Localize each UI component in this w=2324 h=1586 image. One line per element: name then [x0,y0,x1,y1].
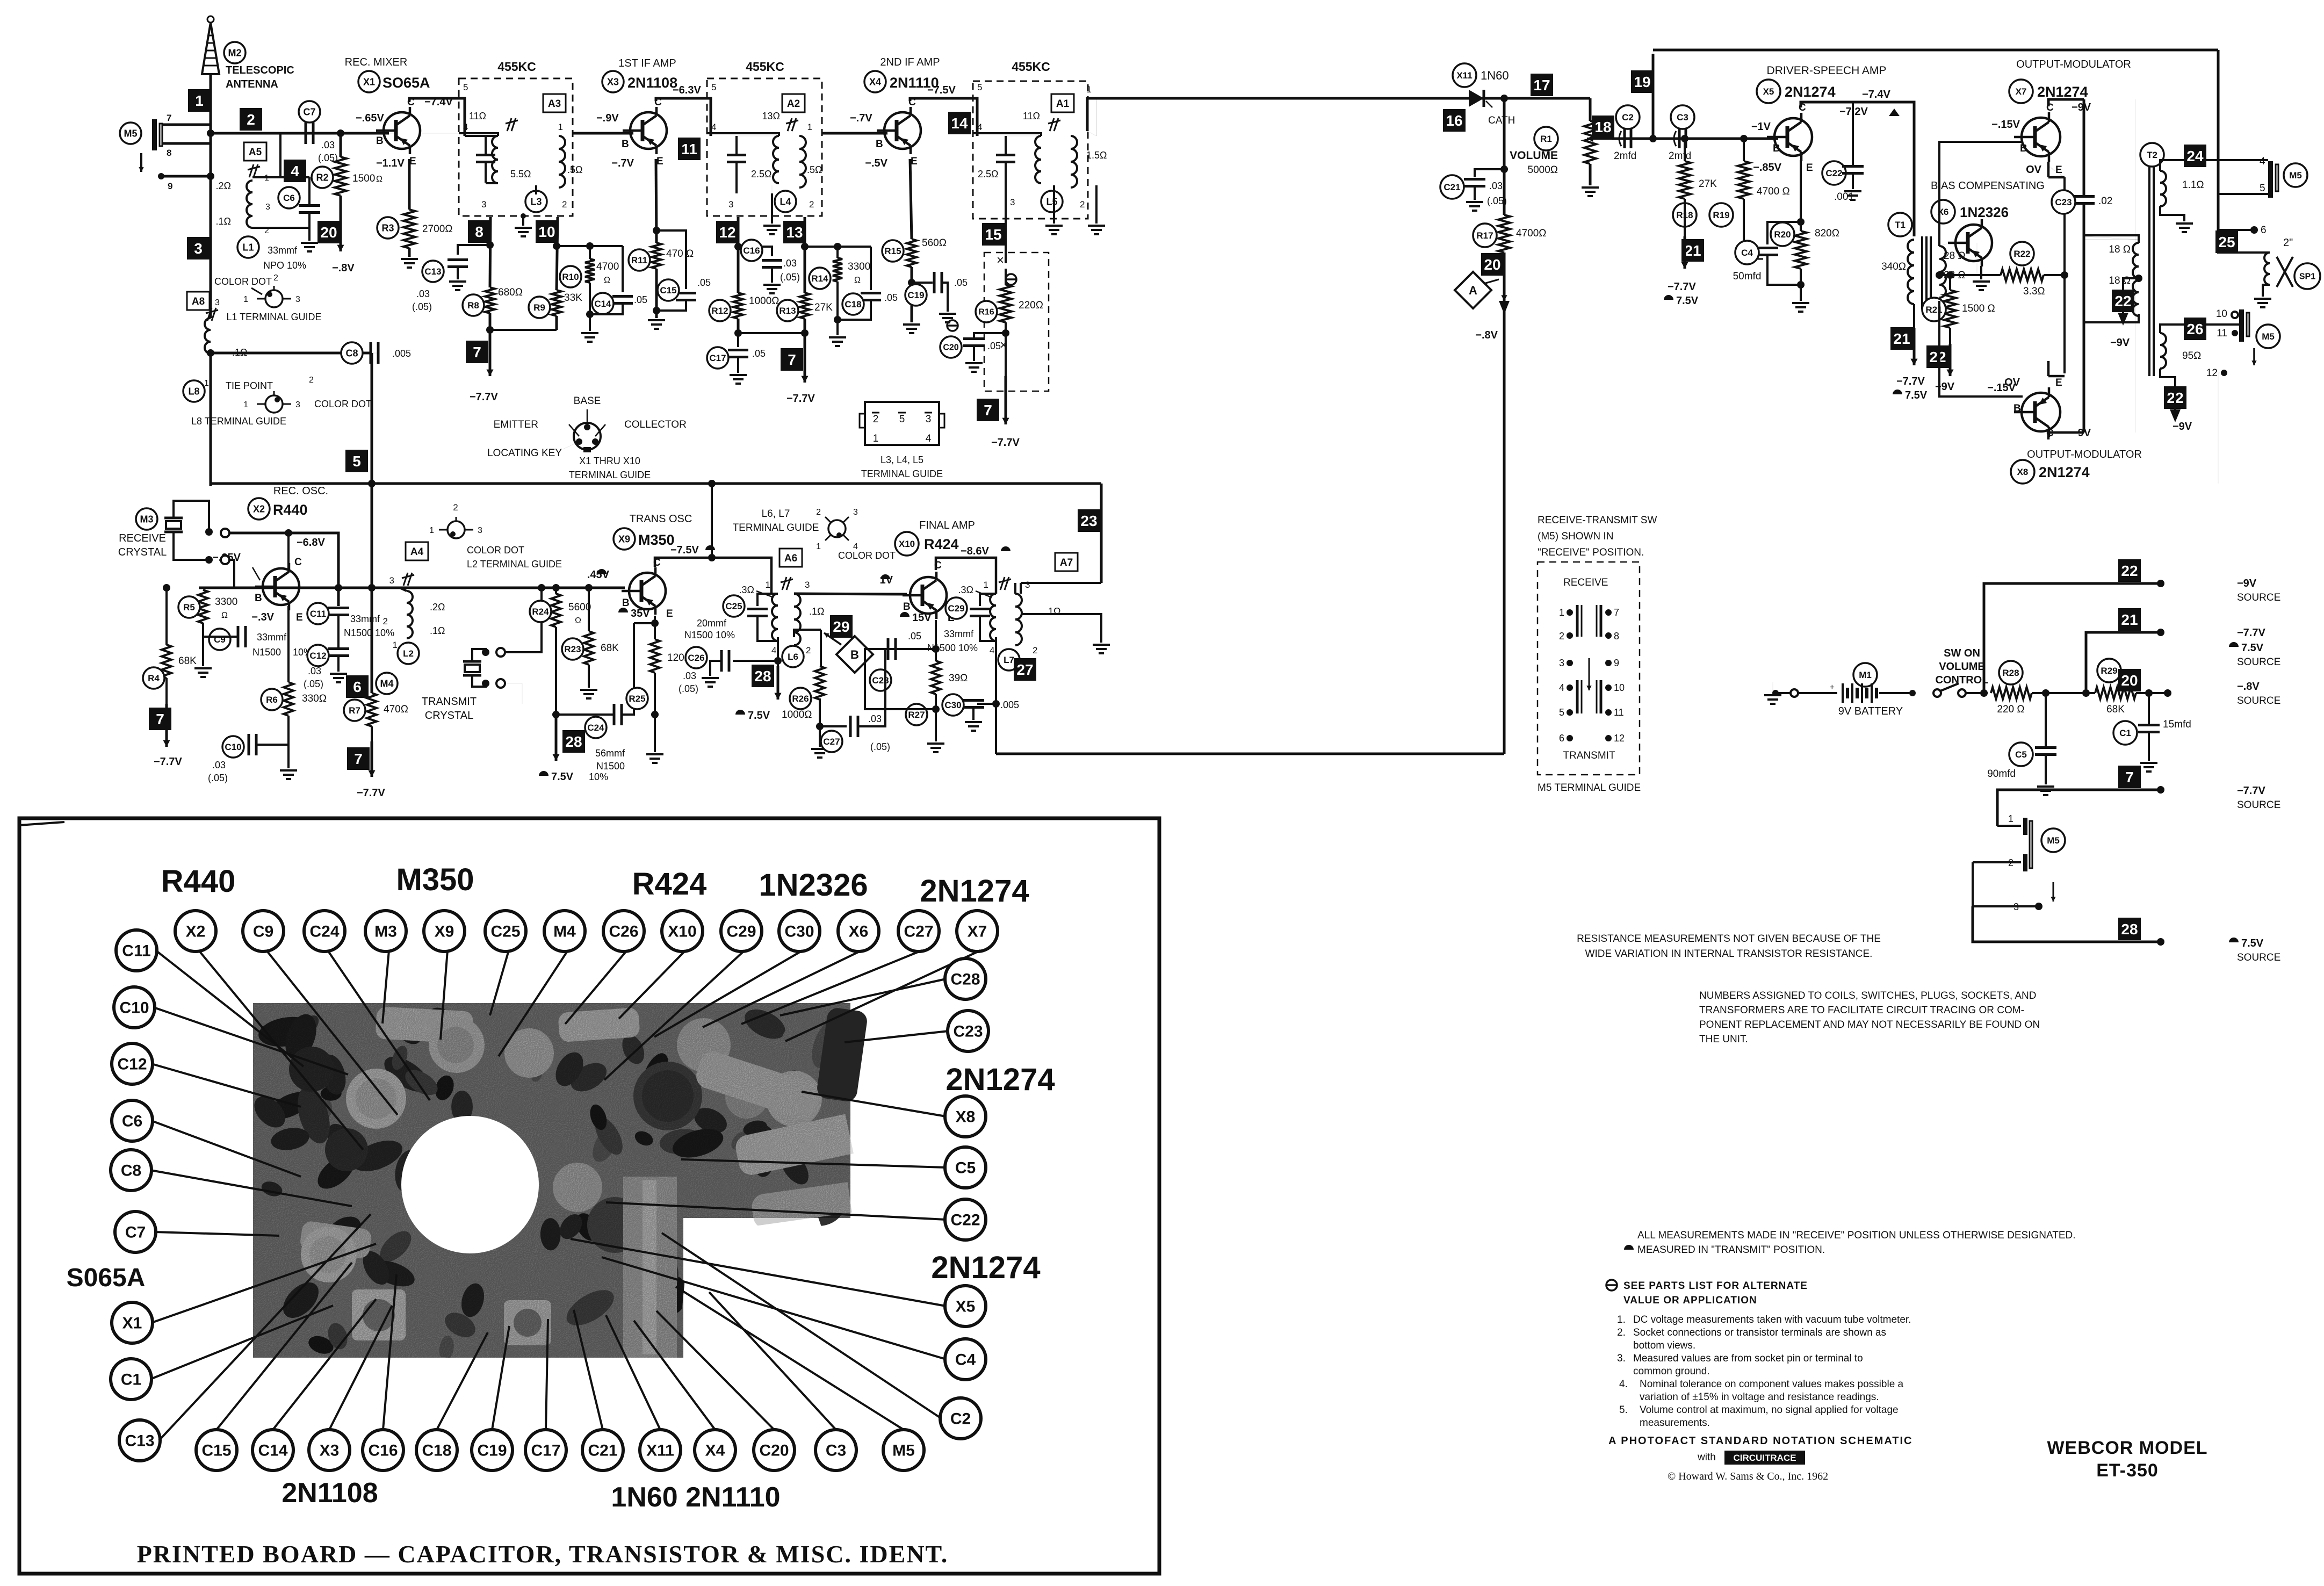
svg-text:11Ω: 11Ω [469,111,486,121]
svg-text:C2: C2 [950,1410,971,1428]
svg-text:measurements.: measurements. [1640,1417,1710,1429]
svg-text:R22: R22 [2013,249,2030,259]
svg-text:−9V: −9V [2237,578,2257,589]
svg-text:L2 TERMINAL GUIDE: L2 TERMINAL GUIDE [467,559,562,569]
svg-text:.05: .05 [697,277,711,288]
svg-text:Ω: Ω [575,616,581,625]
svg-text:COLLECTOR: COLLECTOR [624,419,687,430]
svg-text:15V: 15V [912,612,932,624]
svg-text:ALL MEASUREMENTS MADE IN "RECE: ALL MEASUREMENTS MADE IN "RECEIVE" POSIT… [1637,1230,2076,1241]
svg-text:28: 28 [2121,921,2138,938]
svg-text:X11: X11 [646,1442,674,1460]
svg-text:−.65V: −.65V [356,112,384,124]
svg-text:27K: 27K [814,302,833,313]
svg-text:2700Ω: 2700Ω [422,224,452,235]
svg-text:33mmf: 33mmf [350,614,380,624]
svg-text:C16: C16 [743,246,760,256]
svg-text:.2Ω: .2Ω [216,181,231,191]
svg-text:13: 13 [786,224,803,241]
svg-text:N1500 10%: N1500 10% [927,643,978,653]
svg-text:"RECEIVE" POSITION.: "RECEIVE" POSITION. [1538,547,1644,558]
svg-text:C19: C19 [477,1442,507,1460]
svg-text:C14: C14 [258,1442,287,1460]
svg-text:R6: R6 [266,695,278,705]
svg-text:B: B [850,648,859,661]
svg-text:L1 TERMINAL GUIDE: L1 TERMINAL GUIDE [226,312,321,322]
svg-text:C16: C16 [368,1442,398,1460]
svg-text:−7.7V: −7.7V [470,391,498,403]
svg-text:16: 16 [1446,112,1462,129]
svg-text:−7.7V: −7.7V [2237,627,2265,639]
svg-text:−.8V: −.8V [2237,681,2260,693]
svg-text:.05: .05 [908,631,921,641]
svg-text:C19: C19 [907,290,924,300]
svg-text:2N1108: 2N1108 [282,1477,378,1509]
svg-text:.5Ω: .5Ω [567,164,582,175]
svg-text:(.05): (.05) [870,741,890,752]
svg-text:C18: C18 [422,1442,451,1460]
svg-text:14: 14 [951,115,968,132]
svg-text:21: 21 [1893,330,1910,347]
svg-text:X1: X1 [363,76,375,87]
svg-text:7: 7 [1614,607,1619,618]
svg-text:R440: R440 [161,864,236,899]
svg-text:−7.5V: −7.5V [927,84,956,96]
svg-text:−.8V: −.8V [1475,329,1498,341]
svg-text:X9: X9 [435,923,454,941]
svg-text:−7.5V: −7.5V [670,544,699,556]
svg-text:3: 3 [478,526,482,535]
svg-text:−9V: −9V [2072,102,2091,113]
svg-text:L3, L4, L5: L3, L4, L5 [880,455,923,465]
svg-text:R25: R25 [629,694,645,704]
svg-text:CIRCUITRACE: CIRCUITRACE [1733,1453,1796,1463]
svg-text:Ω: Ω [376,175,382,184]
svg-text:TRANSFORMERS ARE TO FACILITATE: TRANSFORMERS ARE TO FACILITATE CIRCUIT T… [1699,1005,2024,1016]
svg-text:−.9V: −.9V [596,112,619,124]
svg-text:OUTPUT-MODULATOR: OUTPUT-MODULATOR [2027,449,2142,460]
svg-text:E: E [296,612,303,623]
svg-text:5.: 5. [1619,1404,1628,1416]
svg-text:E: E [911,156,918,167]
svg-text:Volume control at maximum, no: Volume control at maximum, no signal app… [1640,1404,1899,1416]
svg-text:R12: R12 [711,306,728,316]
svg-text:7.5V: 7.5V [748,710,770,722]
svg-text:RECEIVE: RECEIVE [119,532,166,544]
svg-text:.03: .03 [308,666,321,676]
svg-text:OV: OV [2026,164,2042,176]
svg-text:×: × [997,253,1004,268]
svg-text:C12: C12 [117,1056,147,1073]
svg-text:TIE POINT: TIE POINT [226,380,273,391]
svg-text:C26: C26 [688,653,704,663]
svg-text:SOURCE: SOURCE [2237,799,2280,811]
svg-text:L6, L7: L6, L7 [762,508,790,520]
svg-text:2: 2 [816,508,821,517]
svg-text:4: 4 [463,122,468,132]
svg-text:C: C [294,557,302,568]
svg-text:−6.8V: −6.8V [297,537,325,549]
svg-text:A PHOTOFACT STANDARD NOTATION: A PHOTOFACT STANDARD NOTATION SCHEMATIC [1608,1435,1913,1447]
svg-text:.05: .05 [752,348,766,359]
svg-text:C21: C21 [588,1442,617,1460]
svg-text:470Ω: 470Ω [384,704,408,715]
svg-text:A8: A8 [192,296,205,307]
svg-text:C8: C8 [345,348,358,358]
svg-text:X4: X4 [869,76,881,87]
svg-text:3: 3 [728,199,733,210]
svg-text:M5: M5 [892,1442,915,1460]
svg-text:.45V: .45V [587,569,610,581]
svg-text:5: 5 [977,82,982,92]
svg-text:1: 1 [429,526,434,535]
svg-text:A2: A2 [787,98,800,110]
svg-text:(.05): (.05) [679,683,698,694]
svg-text:B: B [876,139,883,150]
svg-text:11Ω: 11Ω [1023,111,1040,121]
svg-text:5: 5 [463,82,468,92]
svg-text:T2: T2 [2147,150,2157,160]
svg-text:68K: 68K [601,643,619,654]
svg-text:1: 1 [1559,607,1564,618]
svg-text:TRANSMIT: TRANSMIT [1563,750,1615,761]
svg-text:−.5V: −.5V [865,157,887,169]
svg-text:4700Ω: 4700Ω [1516,228,1546,239]
svg-text:33mmf: 33mmf [268,245,298,256]
svg-text:C13: C13 [424,266,441,277]
svg-text:R424: R424 [632,867,707,902]
svg-text:R23: R23 [564,644,581,654]
svg-text:19: 19 [1634,74,1650,90]
svg-text:3: 3 [215,298,220,307]
svg-text:2: 2 [273,273,278,283]
svg-text:M5: M5 [2289,170,2302,181]
svg-text:1: 1 [873,433,879,444]
svg-text:X2: X2 [253,503,265,514]
svg-text:LOCATING KEY: LOCATING KEY [487,448,562,459]
svg-text:20: 20 [320,224,337,241]
svg-text:1N60: 1N60 [1481,69,1509,82]
svg-text:ANTENNA: ANTENNA [226,78,278,90]
svg-text:2.5Ω: 2.5Ω [978,169,998,179]
svg-text:C3: C3 [1677,112,1688,122]
svg-text:C23: C23 [953,1023,983,1041]
svg-text:5.5Ω: 5.5Ω [510,169,531,179]
svg-text:L8: L8 [188,386,199,396]
svg-text:.3Ω: .3Ω [739,585,754,595]
svg-text:C15: C15 [660,285,676,295]
svg-text:.05: .05 [954,277,968,288]
svg-text:−.7V: −.7V [850,112,872,124]
svg-text:M5 TERMINAL GUIDE: M5 TERMINAL GUIDE [1538,782,1641,794]
svg-text:1: 1 [816,542,821,551]
svg-text:R27: R27 [908,710,925,720]
svg-text:3: 3 [805,580,810,590]
svg-text:A5: A5 [249,147,262,158]
svg-text:C22: C22 [950,1212,980,1229]
svg-text:5000Ω: 5000Ω [1528,164,1558,176]
svg-text:R8: R8 [467,300,479,311]
svg-text:18 Ω: 18 Ω [2109,244,2131,255]
svg-text:39Ω: 39Ω [949,673,968,684]
svg-text:X5: X5 [956,1298,976,1316]
svg-text:X1: X1 [122,1315,142,1332]
svg-text:1: 1 [2008,813,2013,824]
svg-text:M4: M4 [380,678,393,689]
svg-text:SW ON: SW ON [1944,647,1980,659]
svg-text:1: 1 [766,580,770,590]
svg-text:ET-350: ET-350 [2096,1460,2159,1481]
svg-text:C29: C29 [948,603,964,614]
svg-text:VOLUME: VOLUME [1939,661,1985,673]
svg-text:2.5Ω: 2.5Ω [751,169,771,179]
svg-text:90mfd: 90mfd [1987,768,2016,780]
svg-text:3300: 3300 [848,261,870,272]
svg-text:820Ω: 820Ω [1815,228,1839,239]
svg-text:455KC: 455KC [746,60,784,74]
svg-text:C26: C26 [609,923,638,941]
svg-text:680Ω: 680Ω [498,287,523,298]
svg-text:−.3V: −.3V [251,611,274,623]
svg-text:X8: X8 [2017,467,2029,477]
svg-text:6: 6 [2261,225,2267,236]
svg-text:with: with [1697,1452,1716,1463]
svg-text:1: 1 [984,580,988,590]
svg-text:C5: C5 [2015,749,2027,760]
svg-text:X2: X2 [186,923,206,941]
svg-text:R15: R15 [884,246,901,256]
svg-text:S065A: S065A [67,1264,146,1292]
svg-text:SOURCE: SOURCE [2237,657,2280,668]
svg-text:3: 3 [194,240,203,257]
svg-text:BIAS COMPENSATING: BIAS COMPENSATING [1931,180,2045,192]
svg-text:N1500: N1500 [596,761,625,772]
svg-text:L7: L7 [1004,655,1014,665]
svg-text:11: 11 [1614,707,1624,718]
svg-text:4: 4 [990,645,994,655]
svg-text:C8: C8 [121,1162,141,1180]
svg-text:7: 7 [354,751,363,767]
svg-text:R17: R17 [1476,230,1493,241]
svg-text:SOURCE: SOURCE [2237,695,2280,707]
svg-text:1V: 1V [880,574,893,586]
svg-text:N1500 10%: N1500 10% [344,628,394,638]
svg-text:−9V: −9V [2110,337,2130,349]
svg-text:1N60 2N1110: 1N60 2N1110 [611,1482,780,1513]
svg-text:C4: C4 [955,1351,976,1369]
svg-text:18: 18 [1594,119,1611,135]
svg-text:1.5Ω: 1.5Ω [1086,150,1107,161]
svg-text:28: 28 [754,668,771,684]
svg-text:R13: R13 [779,306,796,316]
svg-text:TRANS OSC: TRANS OSC [630,513,692,525]
svg-text:455KC: 455KC [497,60,536,74]
svg-text:bottom views.: bottom views. [1633,1340,1695,1351]
svg-text:.03: .03 [868,713,882,724]
svg-text:C5: C5 [955,1159,976,1177]
svg-text:C18: C18 [845,299,861,309]
svg-text:L4: L4 [780,196,791,207]
svg-text:−.15V: −.15V [1991,119,2020,131]
svg-text:C10: C10 [225,742,241,752]
svg-text:WIDE VARIATION IN INTERNAL TRA: WIDE VARIATION IN INTERNAL TRANSISTOR RE… [1585,948,1873,960]
svg-text:(.05): (.05) [304,679,323,689]
svg-text:4: 4 [977,122,982,132]
svg-text:R10: R10 [562,272,579,282]
svg-text:common ground.: common ground. [1633,1366,1710,1377]
svg-text:22: 22 [2121,563,2138,579]
svg-text:×: × [1000,338,1007,352]
svg-text:CRYSTAL: CRYSTAL [118,546,167,558]
svg-text:Socket connections or transist: Socket connections or transistor termina… [1633,1327,1886,1338]
svg-text:1: 1 [243,295,248,304]
svg-text:R2: R2 [316,172,328,183]
svg-text:−6.3V: −6.3V [673,84,701,96]
svg-text:27K: 27K [1699,178,1717,190]
svg-text:220 Ω: 220 Ω [1997,704,2024,715]
svg-text:7.5V: 7.5V [1905,390,1928,401]
svg-text:1: 1 [195,92,204,109]
svg-text:SEE PARTS LIST FOR ALTERNATE: SEE PARTS LIST FOR ALTERNATE [1623,1280,1808,1292]
svg-text:27: 27 [1016,661,1033,678]
svg-text:B: B [255,593,262,604]
svg-text:2N1274: 2N1274 [946,1062,1055,1097]
svg-text:COLOR DOT: COLOR DOT [467,545,524,556]
svg-text:.03: .03 [683,671,696,681]
svg-text:2N1274: 2N1274 [931,1250,1040,1285]
svg-text:3: 3 [265,203,270,212]
svg-text:SO65A: SO65A [382,75,430,91]
svg-text:2: 2 [1559,631,1564,641]
svg-text:X9: X9 [618,534,630,544]
svg-text:C7: C7 [125,1224,146,1242]
svg-text:26: 26 [2186,321,2203,337]
svg-text:−.8V: −.8V [332,262,355,274]
svg-text:R14: R14 [811,273,828,284]
svg-text:10%: 10% [589,772,608,782]
svg-text:4700: 4700 [596,261,619,272]
svg-text:1500 Ω: 1500 Ω [1962,303,1995,314]
svg-text:C20: C20 [943,343,958,352]
svg-text:B: B [903,601,911,612]
svg-text:1N2326: 1N2326 [759,868,868,903]
svg-text:−7.7V: −7.7V [1668,281,1696,293]
svg-text:3.: 3. [1617,1353,1626,1364]
svg-text:2N1108: 2N1108 [627,75,677,91]
svg-text:.05: .05 [987,341,1001,351]
svg-text:.1Ω: .1Ω [216,216,231,227]
svg-text:7.5V: 7.5V [2241,938,2264,949]
svg-text:R1: R1 [1540,134,1552,144]
svg-text:C4: C4 [1741,248,1753,258]
svg-text:A3: A3 [548,98,561,110]
svg-text:X7: X7 [968,923,987,941]
svg-text:3: 3 [1025,580,1030,590]
svg-text:BASE: BASE [574,395,601,407]
svg-text:X7: X7 [2016,86,2027,97]
svg-text:CRYSTAL: CRYSTAL [425,710,473,722]
svg-text:10: 10 [2216,308,2227,320]
svg-text:C22: C22 [1825,168,1842,178]
svg-text:10: 10 [538,224,555,240]
svg-text:24: 24 [2186,148,2204,164]
svg-text:−7.7V: −7.7V [2237,785,2265,797]
svg-text:TERMINAL GUIDE: TERMINAL GUIDE [733,522,819,534]
svg-text:E: E [656,156,663,167]
svg-text:X1 THRU X10: X1 THRU X10 [579,456,640,466]
svg-text:2N1274: 2N1274 [2037,84,2088,100]
svg-text:X5: X5 [1763,86,1774,97]
svg-text:−1.1V: −1.1V [376,157,405,169]
svg-text:C2: C2 [1622,112,1634,122]
svg-text:7: 7 [156,711,164,727]
svg-text:C10: C10 [119,999,149,1017]
svg-text:RECEIVE-TRANSMIT SW: RECEIVE-TRANSMIT SW [1538,515,1657,526]
svg-text:COLOR DOT: COLOR DOT [314,399,372,409]
svg-text:C20: C20 [759,1442,789,1460]
svg-text:(.05): (.05) [208,773,228,783]
svg-text:3: 3 [1010,197,1015,207]
svg-text:L6: L6 [788,652,798,662]
svg-text:−.85V: −.85V [1753,162,1781,174]
svg-text:DRIVER-SPEECH AMP: DRIVER-SPEECH AMP [1767,64,1887,77]
svg-text:CONTROL: CONTROL [1936,674,1989,686]
svg-text:4: 4 [926,433,932,444]
svg-text:2: 2 [309,376,314,385]
svg-text:470 Ω: 470 Ω [666,248,694,259]
svg-text:TELESCOPIC: TELESCOPIC [226,64,294,76]
svg-text:12: 12 [2206,367,2218,379]
svg-text:C23: C23 [2055,197,2072,207]
svg-text:2: 2 [247,111,255,128]
svg-text:C28: C28 [950,971,980,989]
svg-text:1.: 1. [1617,1314,1626,1325]
svg-text:3.3Ω: 3.3Ω [2023,286,2045,297]
svg-text:A6: A6 [784,553,797,564]
svg-text:R9: R9 [533,302,545,313]
svg-text:C1: C1 [2119,728,2131,738]
svg-text:340Ω: 340Ω [1881,261,1906,272]
svg-text:5: 5 [711,82,716,92]
svg-text:L2: L2 [403,648,414,659]
svg-text:3: 3 [1559,658,1564,668]
svg-text:.05: .05 [884,292,898,303]
svg-text:.03: .03 [212,760,226,770]
svg-text:−.15V: −.15V [1987,382,2016,394]
svg-text:7: 7 [473,344,481,361]
svg-text:1000Ω: 1000Ω [782,709,812,720]
svg-text:.05: .05 [634,294,647,305]
svg-text:−7.7V: −7.7V [991,437,1020,449]
svg-text:FINAL AMP: FINAL AMP [919,520,975,531]
svg-text:2N1274: 2N1274 [920,874,1029,909]
svg-text:C17: C17 [709,353,726,363]
svg-text:17: 17 [1533,77,1550,93]
svg-text:.03: .03 [416,289,430,299]
svg-text:R4: R4 [148,673,160,683]
svg-text:.2Ω: .2Ω [430,602,445,612]
svg-text:1ST IF AMP: 1ST IF AMP [618,57,676,69]
svg-text:C6: C6 [122,1113,142,1130]
svg-text:12: 12 [1614,733,1625,744]
svg-text:9: 9 [1614,658,1619,668]
svg-text:11: 11 [2217,328,2227,339]
svg-text:35V: 35V [631,608,650,619]
svg-text:23: 23 [1080,513,1097,529]
svg-text:X6: X6 [849,923,869,941]
svg-text:22: 22 [1929,349,1946,365]
svg-text:.005: .005 [1000,700,1019,710]
